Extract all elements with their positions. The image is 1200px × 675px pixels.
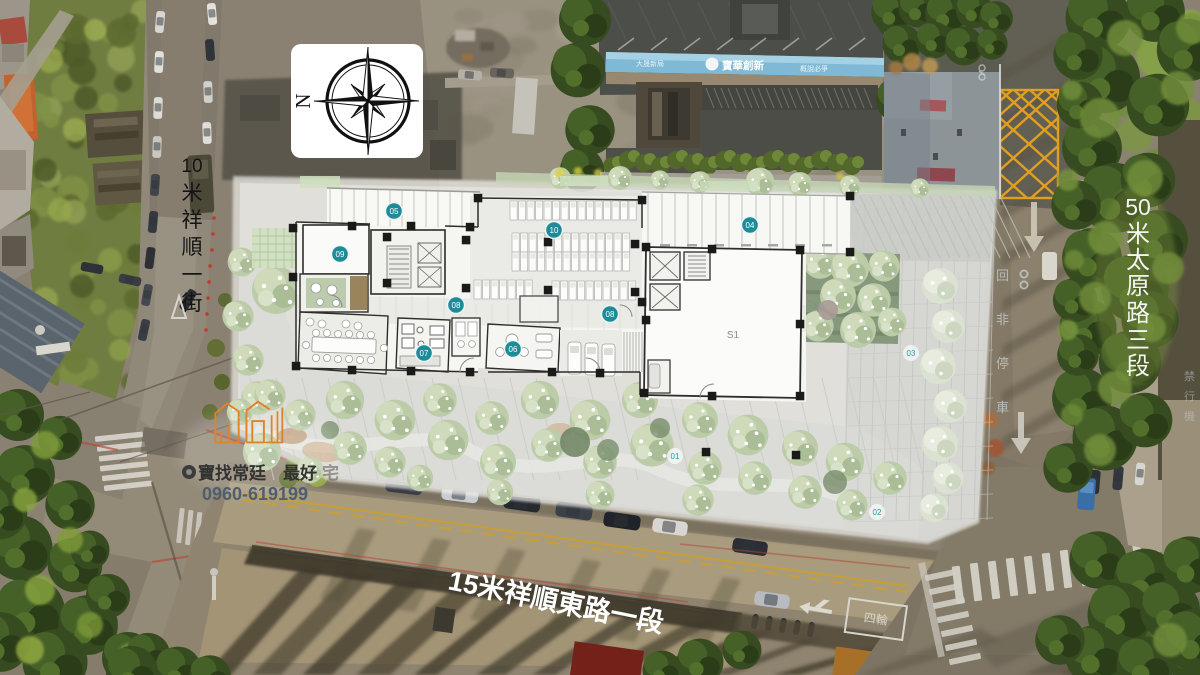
svg-text:大晟新局: 大晟新局 <box>636 59 664 68</box>
svg-text:N: N <box>291 93 315 108</box>
svg-text:寶找常廷 最好: 寶找常廷 最好 <box>198 463 317 483</box>
svg-text:祥: 祥 <box>182 209 203 232</box>
svg-text:非: 非 <box>996 312 1009 327</box>
svg-text:08: 08 <box>452 301 461 310</box>
svg-text:宅: 宅 <box>322 463 339 483</box>
svg-text:04: 04 <box>746 221 755 230</box>
svg-text:米: 米 <box>1126 221 1150 248</box>
svg-text:01: 01 <box>671 452 680 461</box>
svg-text:02: 02 <box>873 508 882 517</box>
svg-text:寶華創新: 寶華創新 <box>722 59 764 72</box>
svg-text:05: 05 <box>390 207 399 216</box>
svg-text:機: 機 <box>1184 409 1195 423</box>
svg-text:07: 07 <box>420 349 429 358</box>
svg-text:08: 08 <box>606 310 615 319</box>
svg-text:一: 一 <box>182 264 203 287</box>
svg-text:10: 10 <box>181 156 202 177</box>
svg-text:車: 車 <box>996 400 1009 415</box>
svg-text:停: 停 <box>996 356 1009 371</box>
svg-text:米: 米 <box>182 182 203 205</box>
svg-text:原: 原 <box>1126 273 1150 300</box>
svg-text:10: 10 <box>550 226 559 235</box>
svg-text:概說必爭: 概說必爭 <box>800 64 828 73</box>
svg-text:禁: 禁 <box>1184 370 1195 383</box>
svg-text:06: 06 <box>509 345 518 354</box>
svg-text:段: 段 <box>1126 353 1150 380</box>
svg-text:03: 03 <box>907 349 916 358</box>
svg-text:行: 行 <box>1184 390 1195 403</box>
svg-text:三: 三 <box>1126 327 1150 354</box>
svg-text:太: 太 <box>1126 247 1150 274</box>
svg-text:街: 街 <box>182 292 203 315</box>
svg-text:路: 路 <box>1126 300 1150 327</box>
svg-text:0960-619199: 0960-619199 <box>202 484 308 504</box>
svg-text:50: 50 <box>1125 194 1151 220</box>
svg-text:09: 09 <box>336 250 345 259</box>
svg-text:順: 順 <box>182 236 203 259</box>
svg-text:S1: S1 <box>727 330 740 341</box>
svg-text:回: 回 <box>996 268 1009 283</box>
